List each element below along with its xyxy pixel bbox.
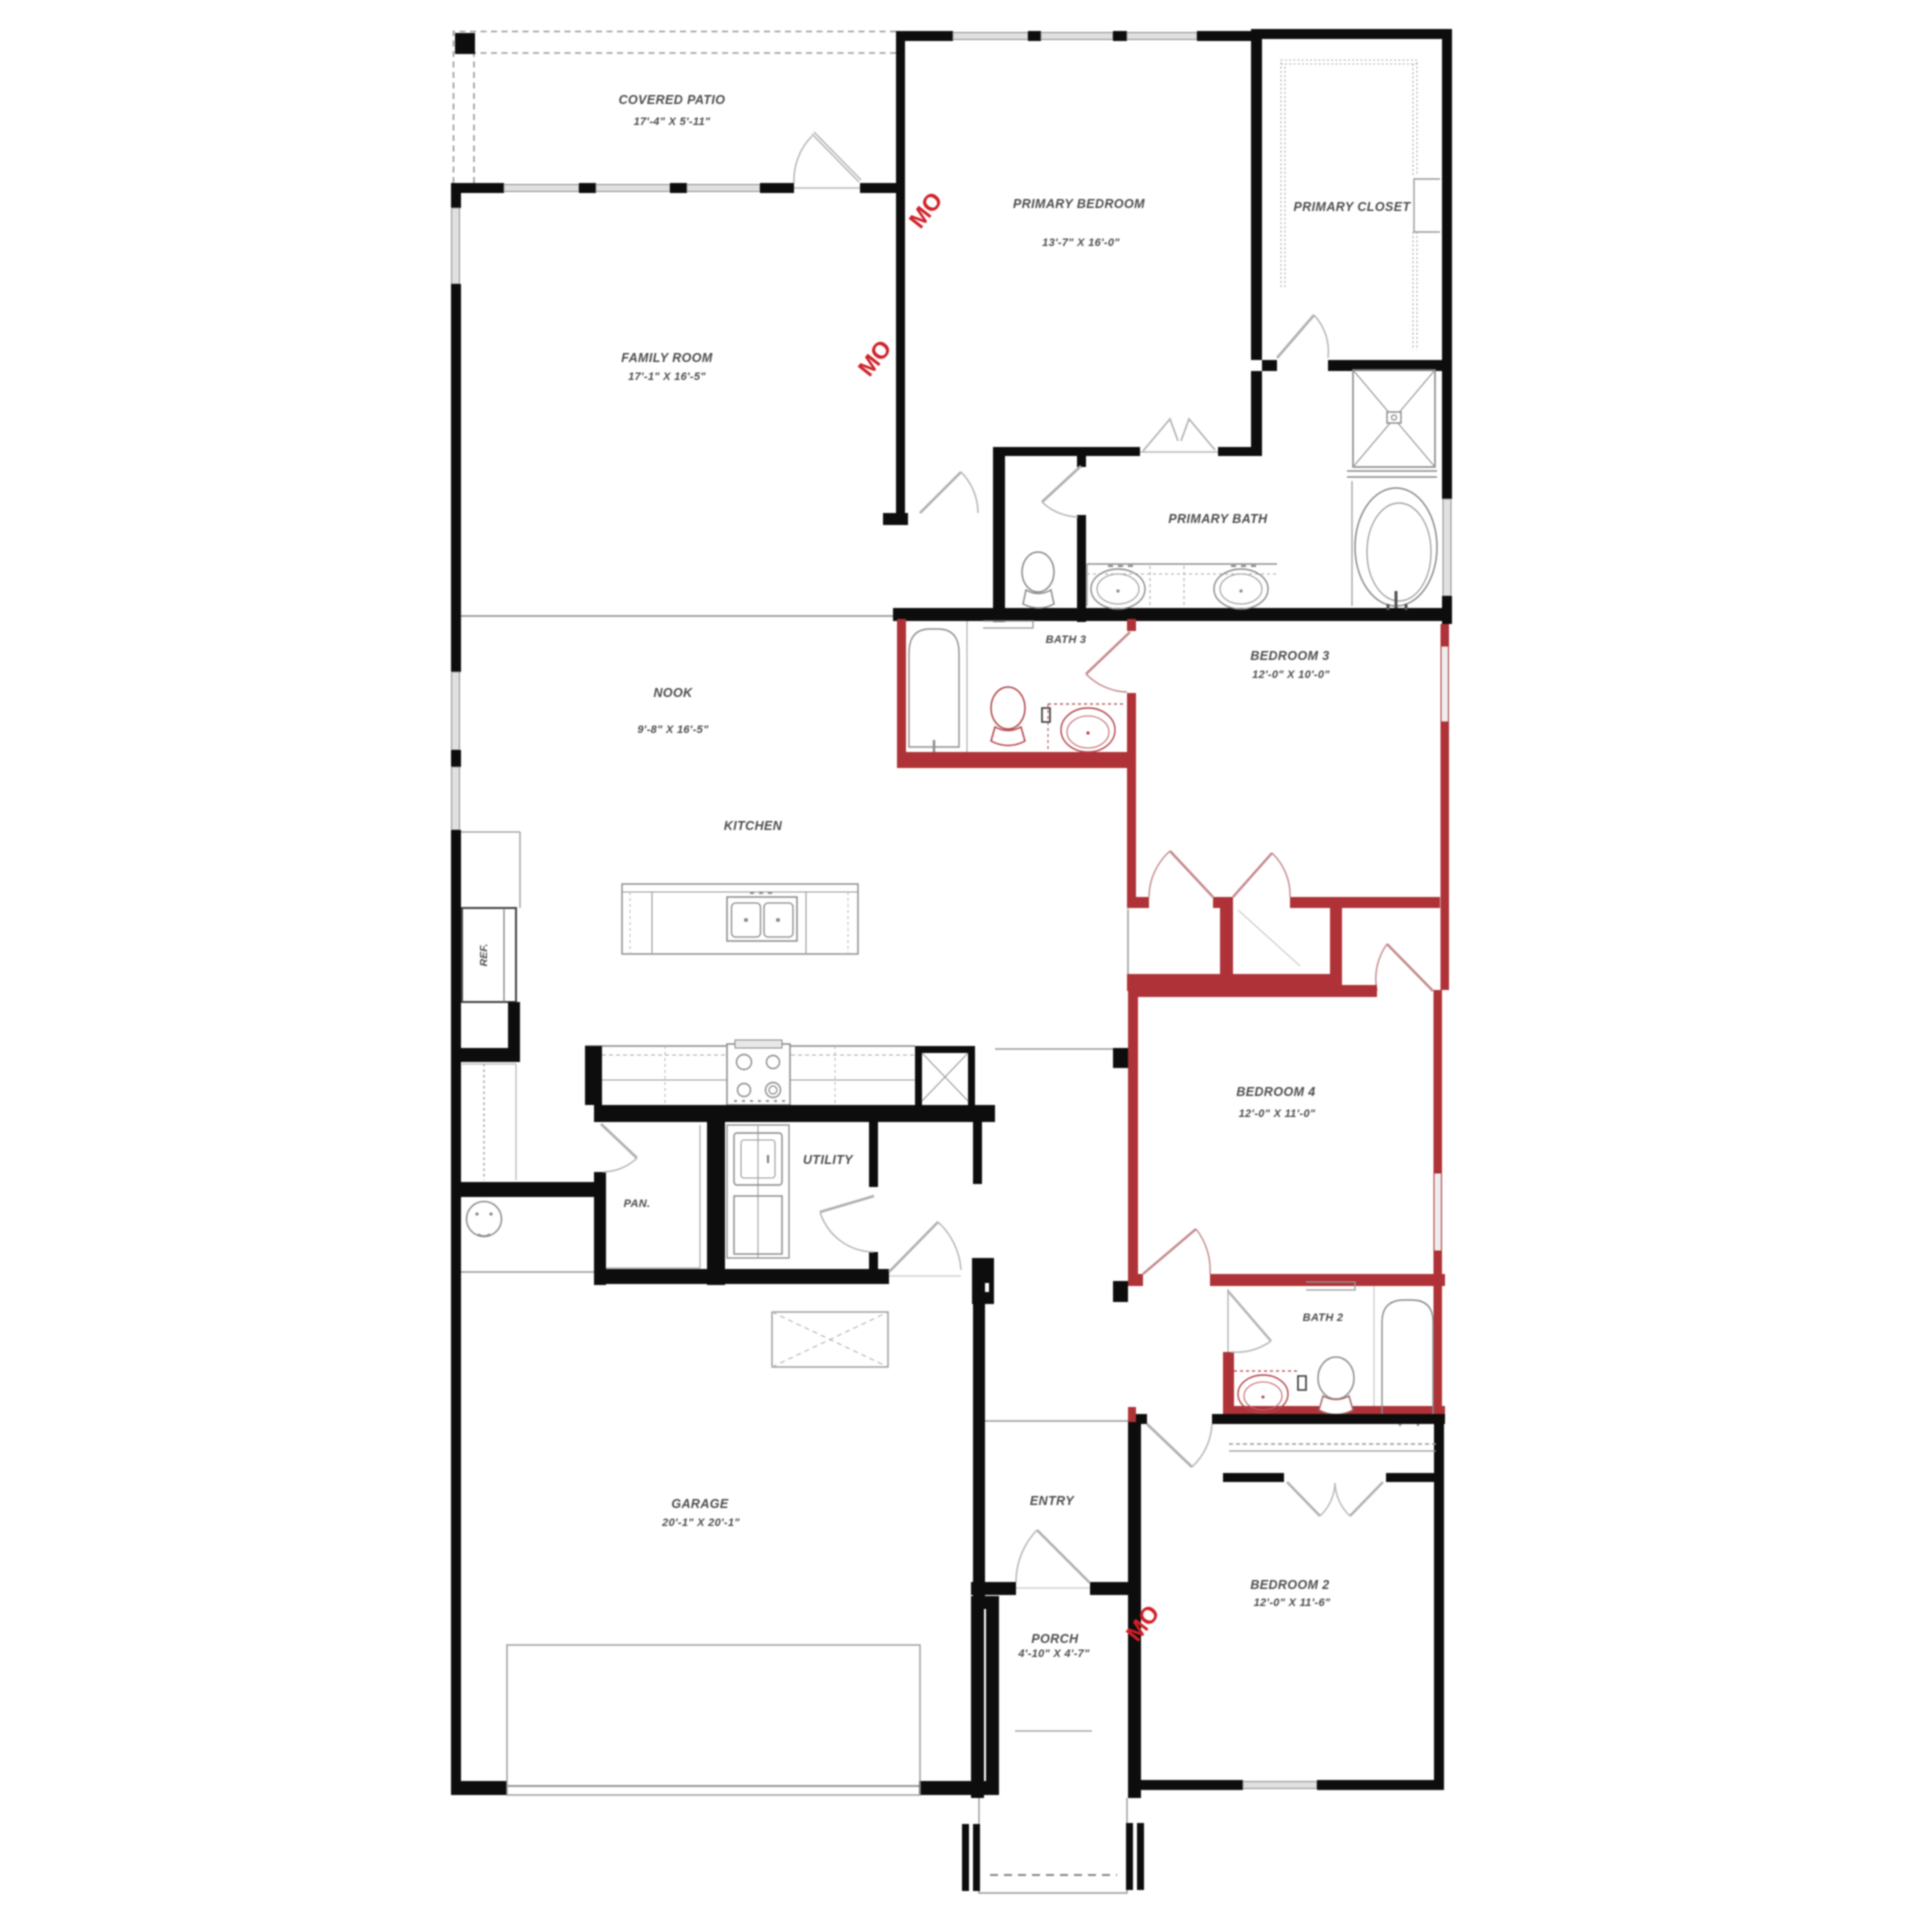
svg-text:PRIMARY BEDROOM: PRIMARY BEDROOM [1013,197,1145,211]
svg-text:17'-4" X 5'-11": 17'-4" X 5'-11" [634,116,711,128]
svg-text:ENTRY: ENTRY [1030,1494,1075,1508]
svg-text:12'-0" X 11'-0": 12'-0" X 11'-0" [1239,1108,1316,1120]
svg-text:13'-7" X 16'-0": 13'-7" X 16'-0" [1042,237,1120,249]
svg-text:PORCH: PORCH [1031,1632,1079,1646]
svg-text:4'-10" X 4'-7": 4'-10" X 4'-7" [1017,1648,1090,1660]
svg-text:17'-1" X 16'-5": 17'-1" X 16'-5" [628,371,706,383]
svg-text:KITCHEN: KITCHEN [724,819,783,833]
svg-text:12'-0" X 11'-6": 12'-0" X 11'-6" [1254,1597,1331,1609]
svg-text:NOOK: NOOK [653,686,693,700]
svg-text:GARAGE: GARAGE [671,1497,729,1511]
svg-text:UTILITY: UTILITY [803,1153,854,1167]
svg-text:BATH 2: BATH 2 [1303,1312,1344,1324]
svg-text:BEDROOM 2: BEDROOM 2 [1250,1578,1329,1592]
svg-text:9'-8" X 16'-5": 9'-8" X 16'-5" [637,724,709,736]
svg-text:COVERED PATIO: COVERED PATIO [619,93,726,107]
svg-text:REF.: REF. [478,944,490,967]
svg-text:PRIMARY CLOSET: PRIMARY CLOSET [1294,200,1412,214]
svg-text:PRIMARY BATH: PRIMARY BATH [1168,512,1268,526]
svg-text:12'-0" X 10'-0": 12'-0" X 10'-0" [1252,669,1330,681]
svg-text:20'-1" X 20'-1": 20'-1" X 20'-1" [661,1517,740,1529]
svg-text:PAN.: PAN. [624,1198,651,1210]
svg-text:BATH 3: BATH 3 [1046,634,1087,646]
svg-text:BEDROOM 3: BEDROOM 3 [1250,649,1329,663]
svg-text:FAMILY ROOM: FAMILY ROOM [621,351,713,365]
svg-text:BEDROOM 4: BEDROOM 4 [1236,1085,1315,1099]
